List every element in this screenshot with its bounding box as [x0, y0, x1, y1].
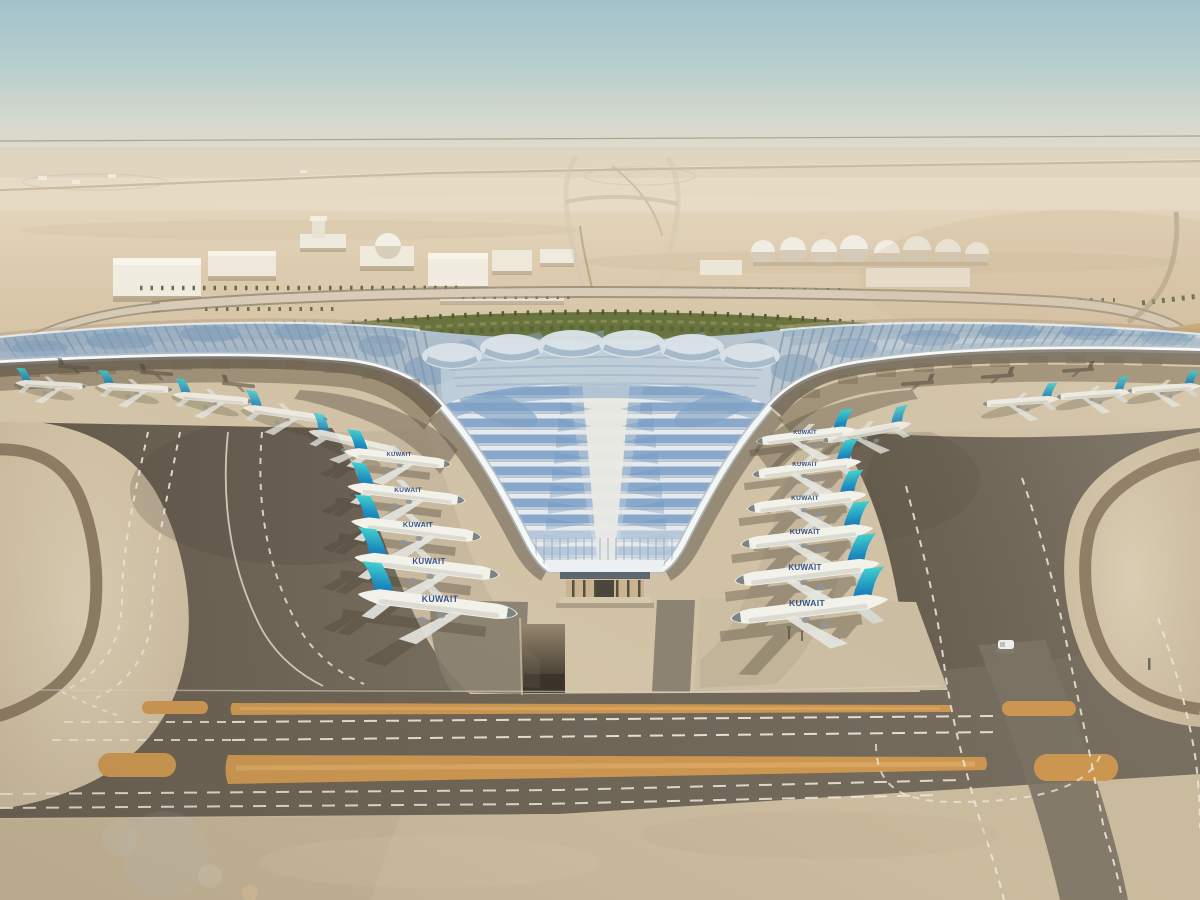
svg-text:KUWAIT: KUWAIT	[790, 527, 821, 536]
svg-text:KUWAIT: KUWAIT	[422, 594, 459, 604]
svg-text:KUWAIT: KUWAIT	[789, 598, 825, 608]
svg-text:KUWAIT: KUWAIT	[793, 430, 817, 436]
svg-text:KUWAIT: KUWAIT	[403, 520, 433, 529]
svg-text:KUWAIT: KUWAIT	[394, 487, 421, 494]
svg-text:KUWAIT: KUWAIT	[788, 563, 821, 572]
svg-text:KUWAIT: KUWAIT	[386, 452, 411, 458]
svg-text:KUWAIT: KUWAIT	[792, 462, 817, 468]
svg-text:KUWAIT: KUWAIT	[791, 495, 819, 502]
svg-text:KUWAIT: KUWAIT	[412, 557, 445, 566]
